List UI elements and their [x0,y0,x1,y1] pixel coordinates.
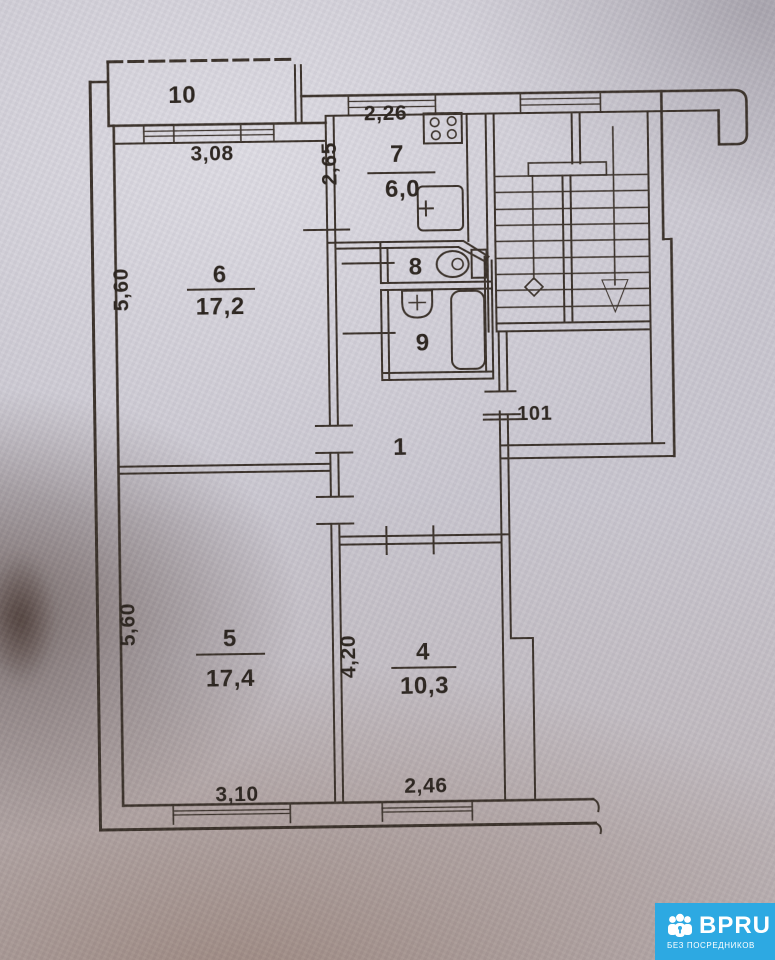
bpru-watermark-badge: BPRU БЕЗ ПОСРЕДНИКОВ [655,903,775,960]
kitchen-room-7: 7 6,0 2,26 2,65 [317,101,488,263]
hallway-room-1: 1 [392,331,536,802]
stair-down-line [613,127,615,285]
stove-icon [424,113,462,144]
kitchen-sink-icon [418,186,464,231]
room-8-number: 8 [409,253,423,280]
dim-room6-depth: 5,60 [110,268,134,312]
room-4-fraction-line [392,667,455,668]
bpru-people-icon [665,913,695,939]
floor-plan-drawing: 10 3,08 [0,0,775,960]
room-1-number: 1 [393,434,407,461]
washbasin-icon [402,290,432,317]
room-6: 6 17,2 5,60 [110,260,331,474]
room-10-number: 10 [168,82,196,109]
room5-door-jamb [317,523,353,524]
stair-landing-edge [528,162,606,176]
room-7-area: 6,0 [385,176,421,203]
bottom-windows: 3,10 2,46 [173,774,473,824]
main-partition-wall [303,116,358,804]
dim-balcony-width: 3,08 [190,142,234,166]
balcony-room-10: 10 [108,59,302,126]
dim-kitchen-width: 2,26 [364,102,408,126]
entrance-door-jamb [484,419,520,420]
stair-start-diamond [525,278,543,296]
room9-door-jamb [344,333,395,334]
room-6-fraction-line [188,289,254,290]
room6-window-wall: 3,08 [109,123,327,167]
balcony-dashed-edge [108,59,297,62]
room6-door-jamb [316,425,352,426]
room-5-fraction-line [197,654,264,655]
room-5: 5 17,4 5,60 [116,601,264,694]
photo-shadow-strip [0,552,56,687]
room-7-number: 7 [390,141,404,168]
room-5-area: 17,4 [206,665,256,693]
room6-door-jamb [316,452,352,453]
room-9-number: 9 [416,329,430,356]
dim-room4-window: 2,46 [404,774,448,798]
dim-kitchen-depth: 2,65 [318,142,342,186]
landing-101-number: 101 [517,403,552,425]
wall-break-mark [593,799,599,811]
floor-plan: 10 3,08 [0,0,775,960]
room-4-number: 4 [416,638,430,665]
room-4: 4 10,3 4,20 [335,525,511,700]
room-6-number: 6 [213,261,227,288]
wall-break-mark [595,823,601,833]
room-4-area: 10,3 [400,672,449,700]
bpru-tagline-text: БЕЗ ПОСРЕДНИКОВ [667,941,755,950]
room-7-fraction-line [368,172,434,173]
dim-room4-depth: 4,20 [337,635,361,679]
bathtub-icon [451,291,485,369]
scanned-photo: 10 3,08 [0,0,775,960]
entrance-door-jamb [484,414,520,415]
toilet-icon [436,250,486,279]
dim-room5-depth: 5,60 [116,603,140,647]
dim-room5-window: 3,10 [215,783,259,807]
room-6-area: 17,2 [195,293,244,321]
kitchen-door-mark [304,230,349,231]
room-5-number: 5 [223,625,237,652]
room5-door-jamb [317,496,353,497]
staircase: 101 [485,91,674,459]
bpru-brand-text: BPRU [699,914,771,938]
room8-door-jamb [343,263,394,264]
